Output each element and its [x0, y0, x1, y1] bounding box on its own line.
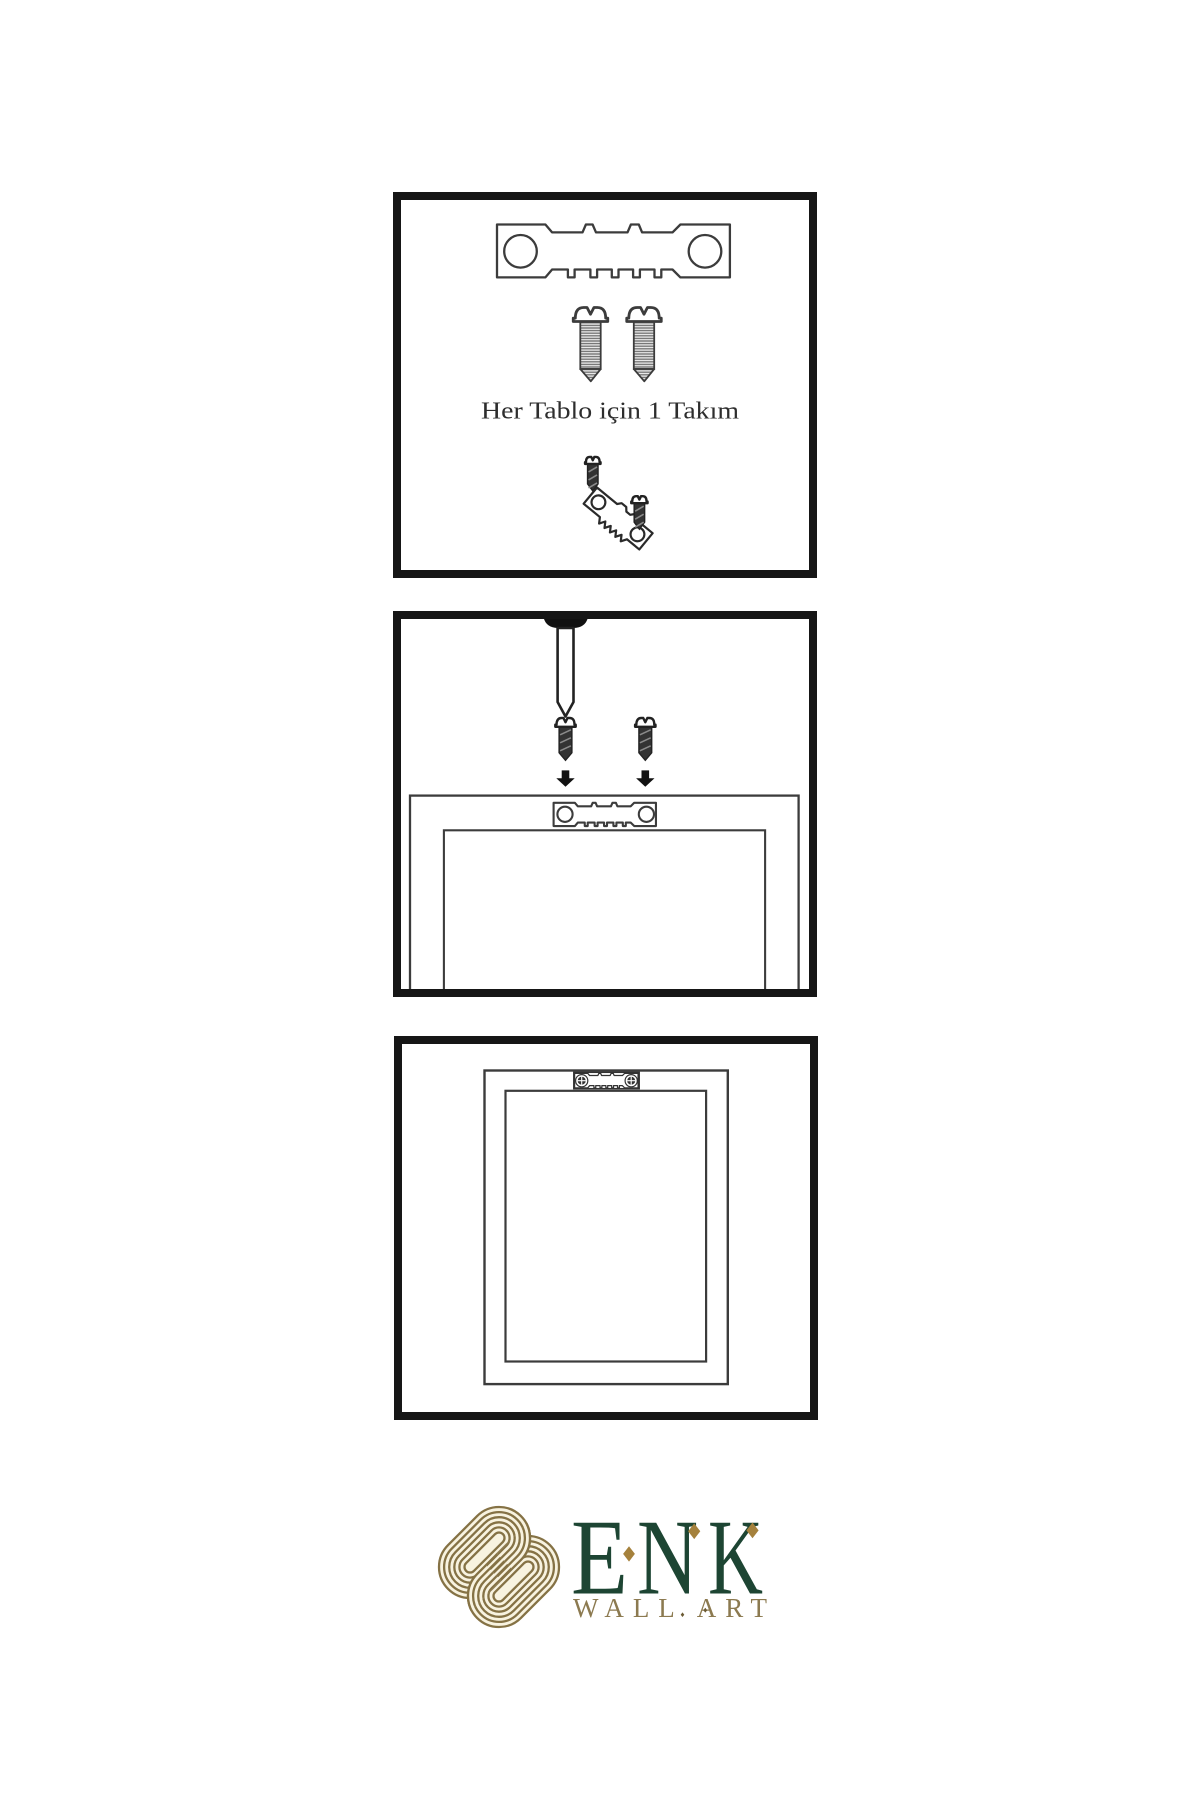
- svg-text:Her Tablo için 1 Takım: Her Tablo için 1 Takım: [481, 397, 739, 424]
